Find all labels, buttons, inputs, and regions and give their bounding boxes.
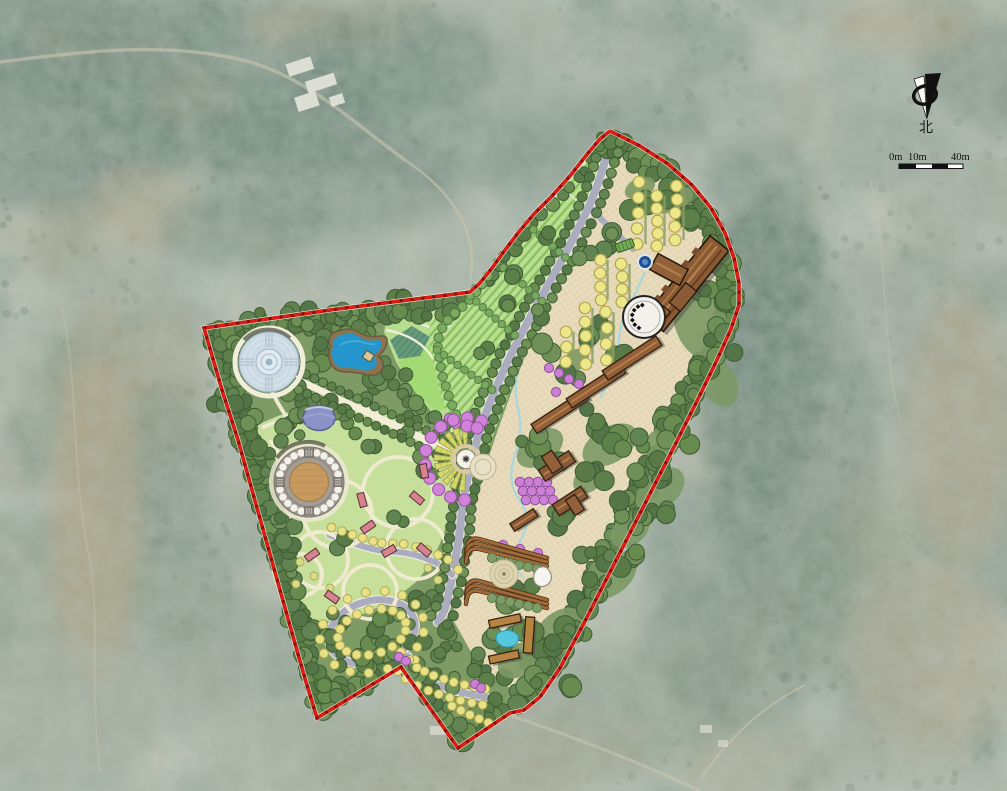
- svg-text:0m: 0m: [889, 152, 902, 163]
- svg-text:北: 北: [919, 120, 933, 136]
- svg-text:10m: 10m: [908, 152, 927, 163]
- svg-text:40m: 40m: [951, 152, 970, 163]
